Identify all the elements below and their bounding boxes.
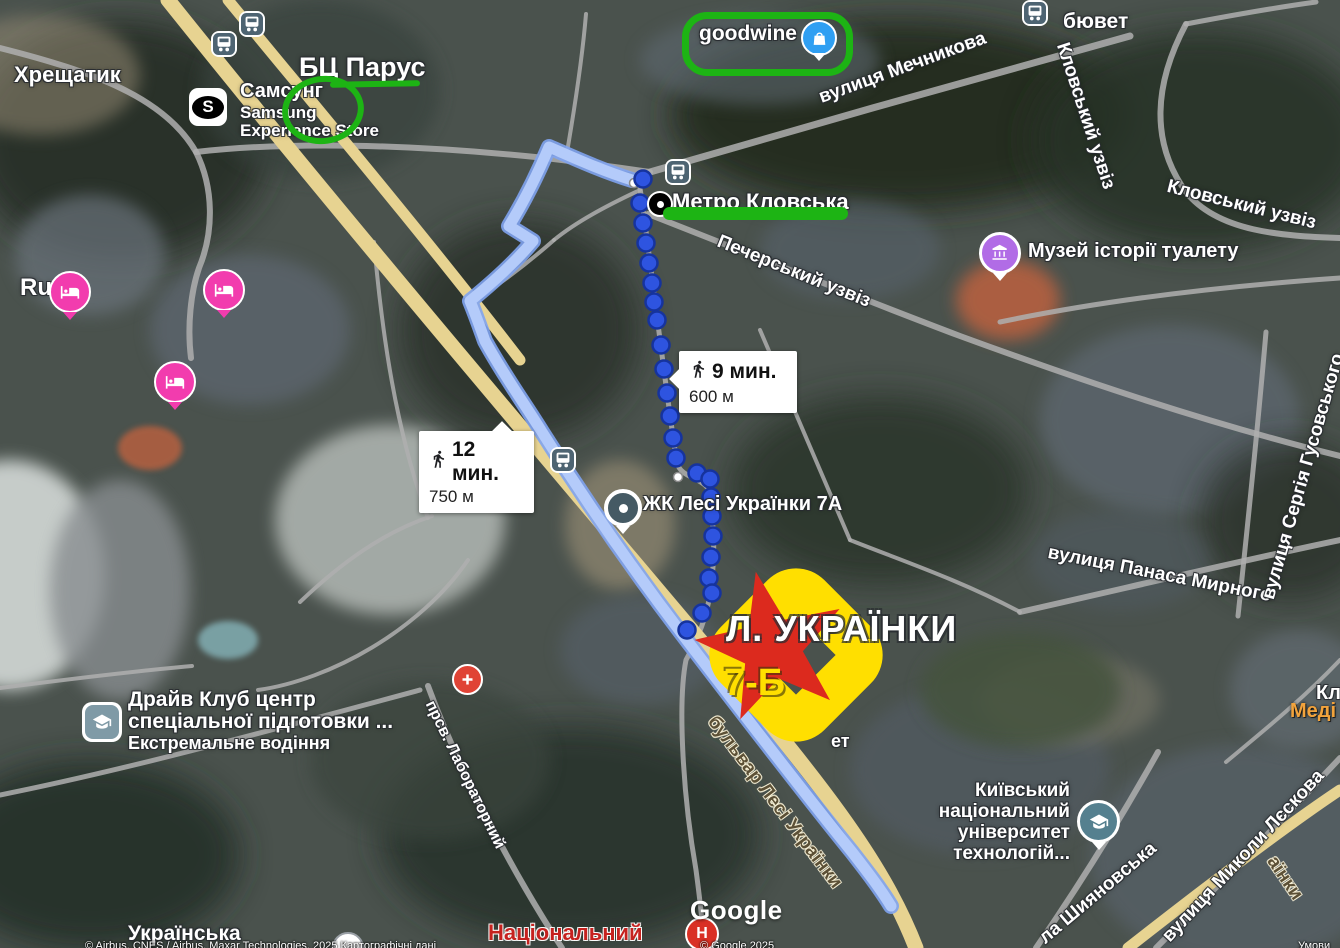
route-dot — [653, 337, 670, 354]
bus-stop-icon[interactable] — [211, 31, 237, 57]
bus-stop-icon[interactable] — [1022, 0, 1048, 26]
route-dot — [646, 294, 663, 311]
samsung-icon[interactable]: S — [189, 88, 227, 126]
annotation-underline-metro — [663, 207, 848, 220]
destination-label-line2: 7-Б — [724, 662, 785, 705]
attribution-terms-link[interactable]: Умови — [1298, 940, 1330, 948]
poi-label-byuvet[interactable]: бювет — [1063, 10, 1128, 34]
route-dot — [665, 430, 682, 447]
poi-label-medi-fragment[interactable]: Меді — [1290, 700, 1336, 723]
walk-time: 12 мин. — [452, 438, 524, 486]
attribution-google: © Google 2025 — [700, 940, 774, 948]
route-dot — [632, 195, 649, 212]
bus-stop-icon[interactable] — [239, 11, 265, 37]
walk-icon — [429, 448, 448, 476]
route-dot — [641, 255, 658, 272]
hotel-icon[interactable] — [154, 361, 196, 403]
annotation-box-goodwine — [682, 12, 853, 76]
school-icon[interactable] — [82, 702, 122, 742]
route-dot — [635, 171, 652, 188]
route-dot — [662, 408, 679, 425]
walk-badge-12min[interactable]: 12 мин. 750 м — [419, 431, 534, 513]
walk-badge-9min[interactable]: 9 мин. 600 м — [679, 351, 797, 413]
walk-distance: 750 м — [429, 487, 524, 507]
attribution-imagery: © Airbus, CNES / Airbus, Maxar Technolog… — [85, 940, 436, 948]
google-logo[interactable]: Google — [690, 895, 783, 926]
school-icon[interactable] — [1077, 800, 1120, 843]
poi-label-university[interactable]: Київський національний університет техно… — [930, 780, 1070, 864]
bus-stop-icon[interactable] — [665, 159, 691, 185]
route-dot — [705, 528, 722, 545]
destination-label-line1: Л. УКРАЇНКИ — [726, 608, 957, 650]
hotel-icon[interactable] — [49, 271, 91, 313]
poi-label-drive-club-1[interactable]: Драйв Клуб центр — [128, 688, 316, 712]
museum-icon[interactable] — [979, 232, 1021, 274]
hotel-icon[interactable] — [203, 269, 245, 311]
map-canvas[interactable]: Хрещатик вулиця Мечникова Кловський узві… — [0, 0, 1340, 948]
satellite-basemap — [0, 0, 1340, 948]
route-dot — [635, 215, 652, 232]
walk-time: 9 мин. — [712, 360, 776, 384]
route-dot — [649, 312, 666, 329]
poi-label-natsionalnyi[interactable]: Національний — [488, 920, 643, 946]
medical-icon[interactable] — [452, 664, 483, 695]
route-dot — [659, 385, 676, 402]
walk-distance: 600 м — [689, 387, 787, 407]
route-dot — [668, 450, 685, 467]
poi-label-zhk[interactable]: ЖК Лесі Українки 7А — [643, 493, 842, 516]
walk-icon — [689, 358, 708, 386]
poi-label-muzei[interactable]: Музей історії туалету — [1028, 240, 1239, 263]
route-dot — [644, 275, 661, 292]
bus-stop-icon[interactable] — [550, 447, 576, 473]
route-waypoint-dot — [674, 473, 683, 482]
route-dot — [656, 361, 673, 378]
route-dot — [702, 471, 719, 488]
poi-label-drive-club-3[interactable]: Екстремальне водіння — [128, 733, 330, 754]
poi-label-drive-club-2[interactable]: спеціальної підготовки ... — [128, 710, 393, 734]
route-dot — [638, 235, 655, 252]
place-label-khreshchatyk[interactable]: Хрещатик — [14, 62, 121, 88]
residential-pin-icon[interactable] — [604, 489, 642, 527]
